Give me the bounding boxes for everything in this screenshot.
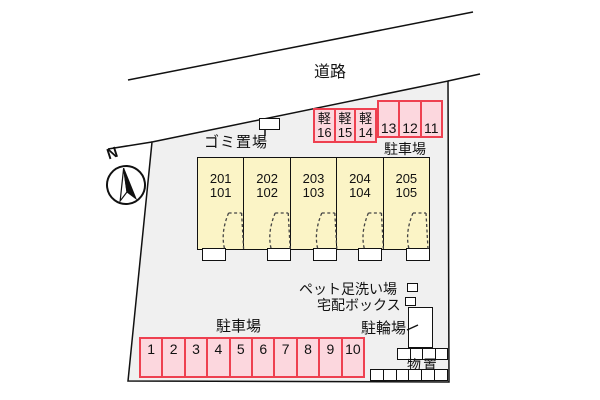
bike-parking-label: 駐輪場 xyxy=(361,317,406,338)
unit-lower-number: 101 xyxy=(210,186,232,200)
spot-number: 6 xyxy=(259,342,267,356)
spot-number: 8 xyxy=(304,342,312,356)
kei-type-label: 軽 xyxy=(318,110,331,126)
spot-number: 4 xyxy=(215,342,223,356)
storage-cell xyxy=(409,370,422,380)
parking-spot-3: 3 xyxy=(186,339,208,376)
parking-spot-13: 13 xyxy=(379,102,400,136)
spot-number: 9 xyxy=(327,342,335,356)
unit-201-101: 201 101 xyxy=(198,158,244,249)
unit-lower-number: 104 xyxy=(349,186,371,200)
unit-203-103: 203 103 xyxy=(291,158,337,249)
parking-spot-12: 12 xyxy=(400,102,421,136)
parking-spot-11: 11 xyxy=(422,102,441,136)
spot-number: 10 xyxy=(345,342,361,356)
storage-cell xyxy=(435,370,447,380)
delivery-box-label: 宅配ボックス xyxy=(317,295,401,315)
parking-spot-8: 8 xyxy=(298,339,320,376)
site-plan: 道路 201 101 202 102 203 103 204 104 205 1… xyxy=(0,0,600,400)
garbage-bin-icon xyxy=(259,118,280,130)
storage-cell xyxy=(371,370,384,380)
kei-parking-group: 軽 16 軽 15 軽 14 xyxy=(313,108,377,143)
unit-lower-number: 102 xyxy=(256,186,278,200)
porch xyxy=(358,248,382,261)
lower-parking-group: 1 2 3 4 5 6 7 8 9 10 xyxy=(139,337,365,378)
spot-number: 2 xyxy=(170,342,178,356)
building: 201 101 202 102 203 103 204 104 205 105 xyxy=(197,157,430,250)
parking-spot-kei-14: 軽 14 xyxy=(356,110,375,141)
upper-parking-group: 13 12 11 xyxy=(377,100,443,138)
spot-number: 5 xyxy=(237,342,245,356)
storage-cell xyxy=(422,370,435,380)
kei-type-label: 軽 xyxy=(339,110,352,126)
parking-spot-2: 2 xyxy=(163,339,185,376)
pet-wash-icon xyxy=(407,283,418,292)
unit-lower-number: 103 xyxy=(303,186,325,200)
spot-number: 1 xyxy=(147,342,155,356)
unit-202-102: 202 102 xyxy=(244,158,290,249)
parking-spot-kei-16: 軽 16 xyxy=(315,110,336,141)
unit-upper-number: 203 xyxy=(303,172,325,186)
spot-number: 11 xyxy=(424,121,439,135)
storage-cell xyxy=(384,370,397,380)
parking-spot-kei-15: 軽 15 xyxy=(336,110,357,141)
parking-spot-10: 10 xyxy=(343,339,363,376)
spot-number: 14 xyxy=(358,126,372,140)
bike-shed xyxy=(408,307,433,348)
road-lower-edge-right xyxy=(448,74,480,81)
unit-205-105: 205 105 xyxy=(384,158,429,249)
parking-spot-5: 5 xyxy=(231,339,253,376)
upper-parking-label: 駐車場 xyxy=(384,139,426,159)
porch xyxy=(313,248,337,261)
unit-upper-number: 201 xyxy=(210,172,232,186)
spot-number: 15 xyxy=(338,126,352,140)
unit-upper-number: 202 xyxy=(256,172,278,186)
storage-row-lower xyxy=(370,369,448,381)
spot-number: 13 xyxy=(381,121,397,135)
unit-204-104: 204 104 xyxy=(337,158,383,249)
unit-lower-number: 105 xyxy=(395,186,417,200)
north-label: N xyxy=(105,144,121,164)
parking-spot-6: 6 xyxy=(253,339,275,376)
parking-spot-7: 7 xyxy=(275,339,297,376)
parking-spot-1: 1 xyxy=(141,339,163,376)
delivery-box-icon xyxy=(405,297,416,306)
road-label: 道路 xyxy=(300,58,360,82)
porch xyxy=(267,248,291,261)
unit-upper-number: 204 xyxy=(349,172,371,186)
kei-type-label: 軽 xyxy=(359,110,372,126)
spot-number: 12 xyxy=(402,121,418,135)
storage-cell xyxy=(397,370,410,380)
spot-number: 7 xyxy=(282,342,290,356)
unit-upper-number: 205 xyxy=(395,172,417,186)
spot-number: 3 xyxy=(192,342,200,356)
garbage-area-label: ゴミ置場 xyxy=(204,131,268,152)
compass-icon xyxy=(105,164,148,207)
lower-parking-label: 駐車場 xyxy=(216,315,261,336)
parking-spot-9: 9 xyxy=(320,339,342,376)
parking-spot-4: 4 xyxy=(208,339,230,376)
porch xyxy=(406,248,430,261)
spot-number: 16 xyxy=(317,126,331,140)
porch xyxy=(202,248,226,261)
